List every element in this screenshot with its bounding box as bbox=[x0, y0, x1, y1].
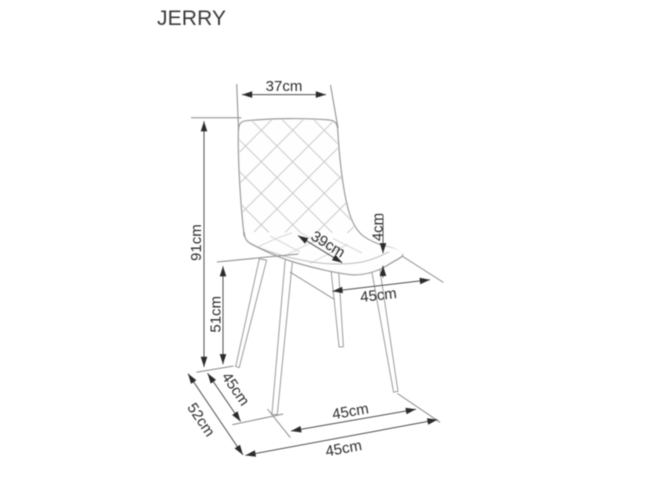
svg-text:51cm: 51cm bbox=[208, 296, 225, 333]
svg-text:37cm: 37cm bbox=[266, 78, 303, 95]
svg-text:JERRY: JERRY bbox=[157, 7, 226, 30]
svg-text:91cm: 91cm bbox=[188, 224, 205, 261]
svg-text:4cm: 4cm bbox=[370, 213, 387, 241]
